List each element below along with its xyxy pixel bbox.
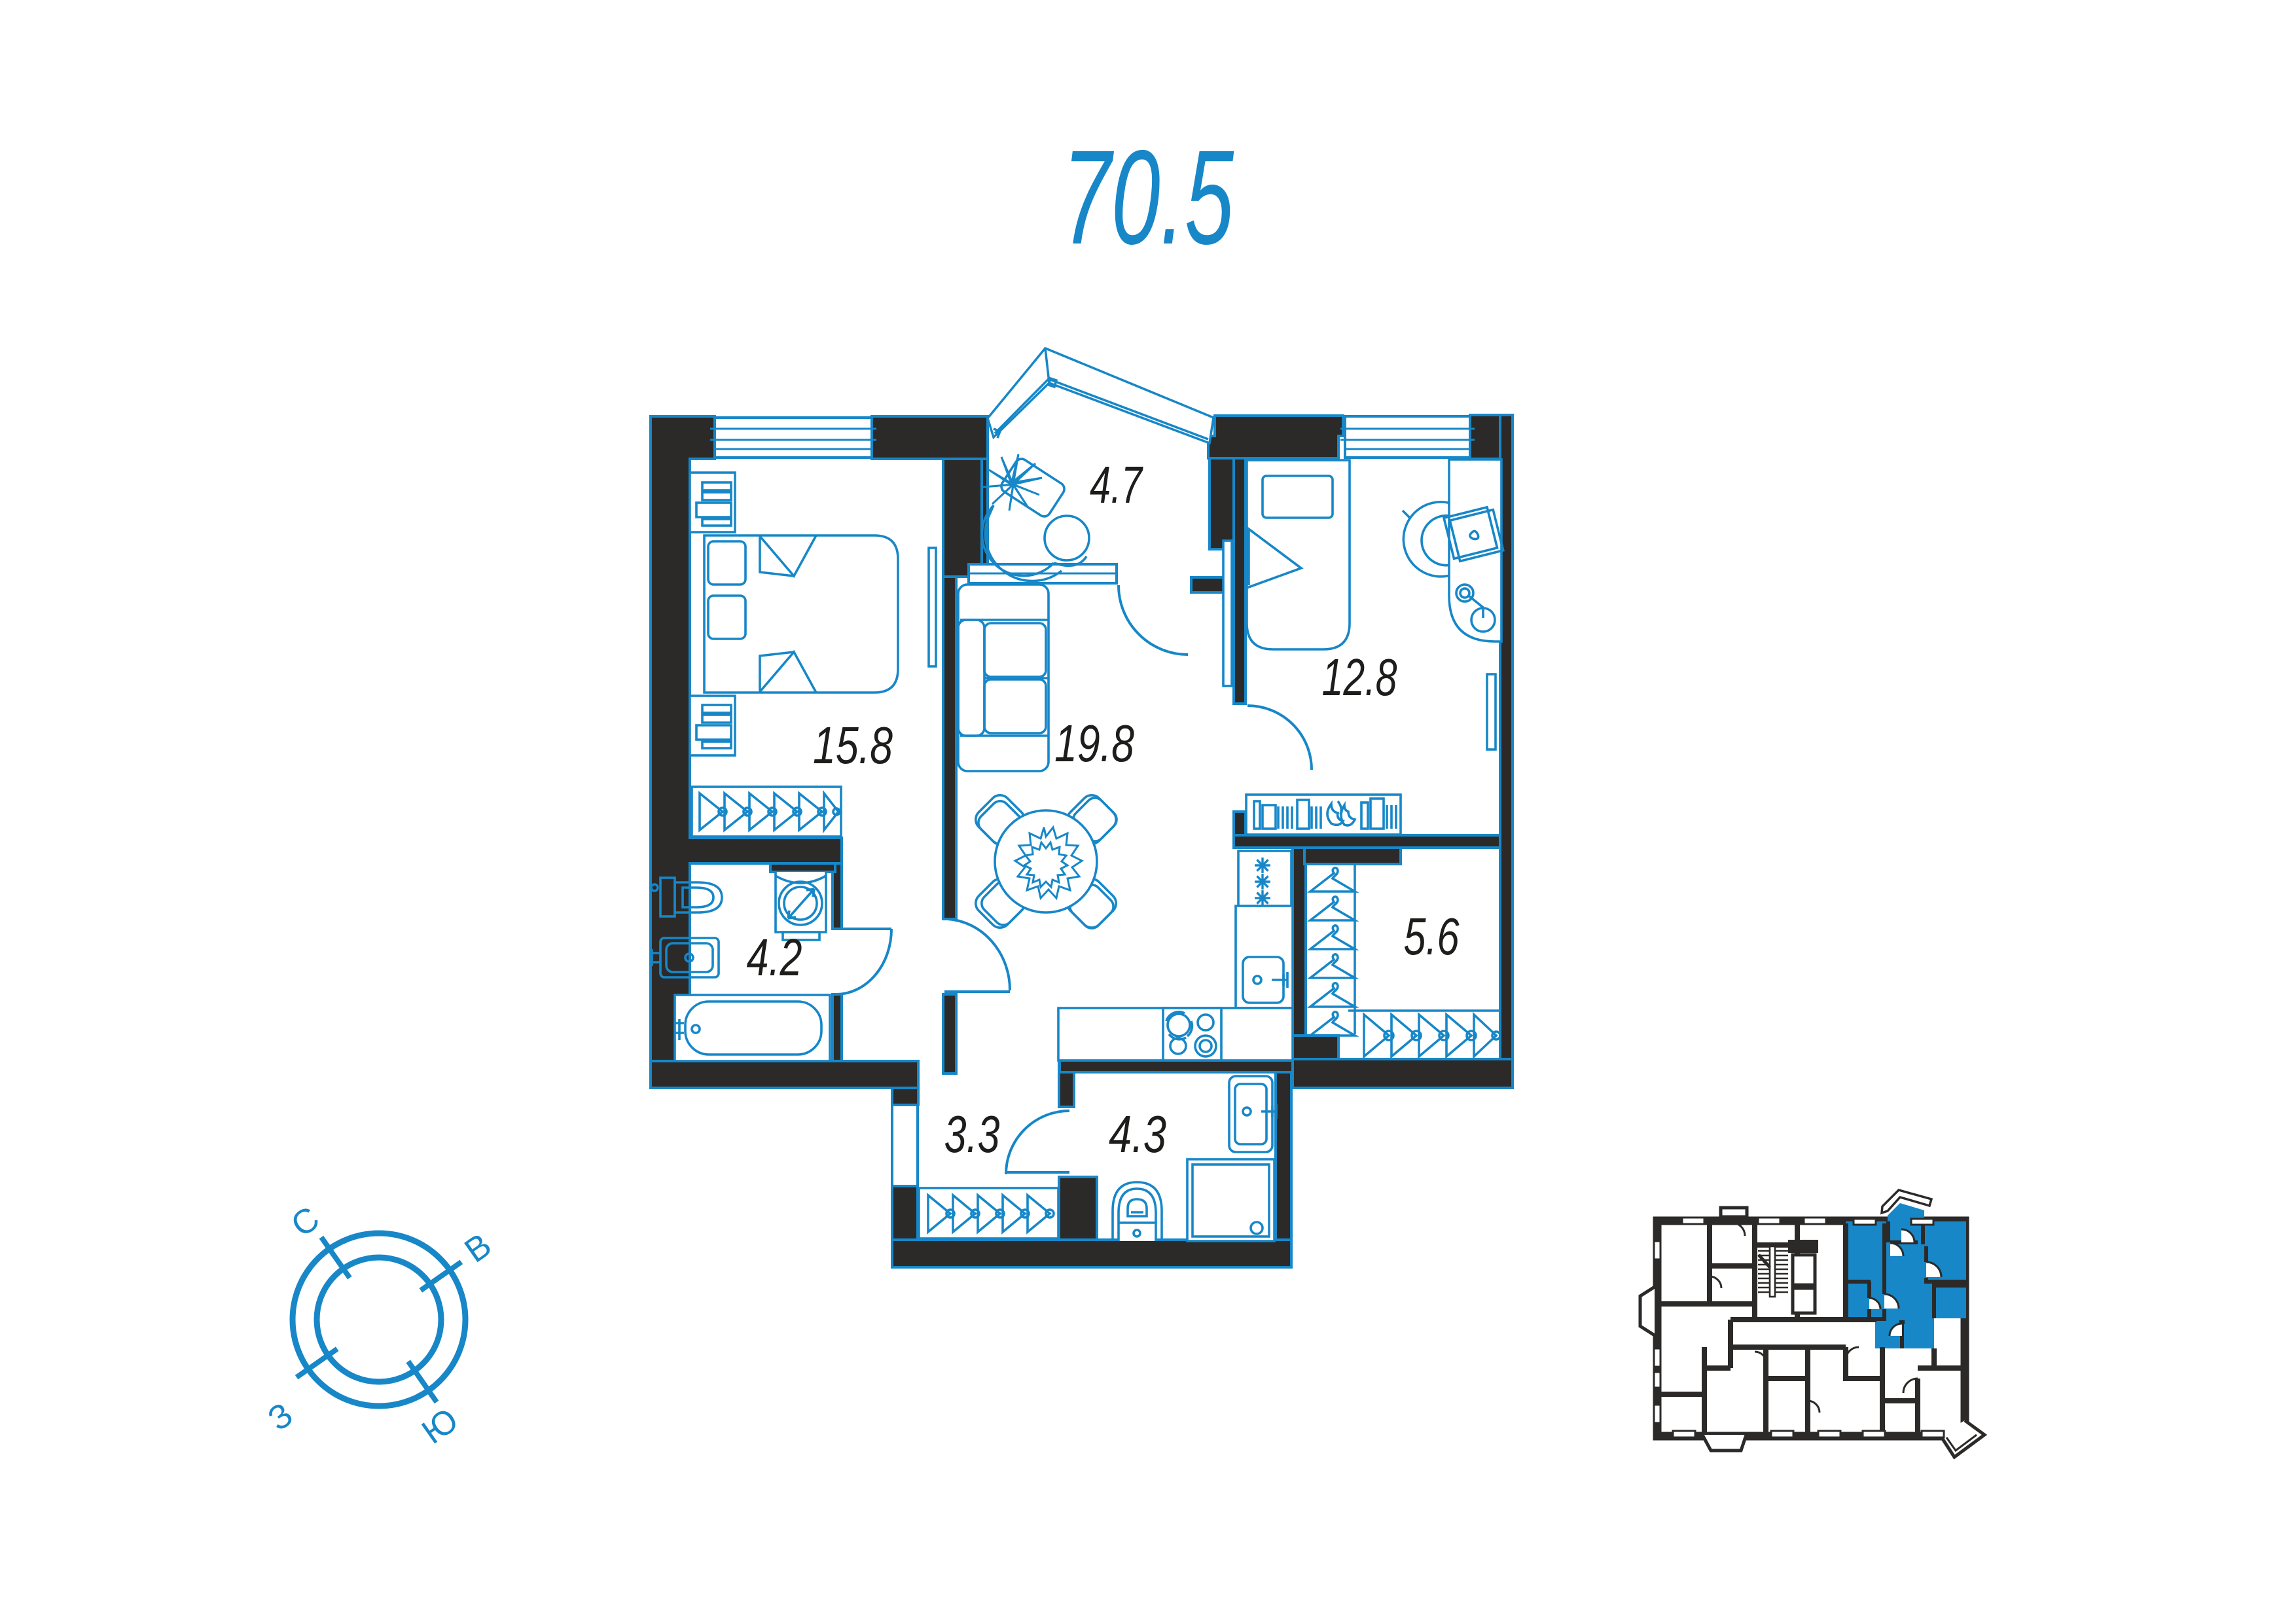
svg-text:3.3: 3.3 — [944, 1105, 1000, 1163]
svg-text:4.3: 4.3 — [1109, 1105, 1166, 1163]
svg-text:4.7: 4.7 — [1090, 456, 1143, 514]
svg-text:19.8: 19.8 — [1054, 714, 1134, 772]
svg-text:70.5: 70.5 — [1062, 122, 1234, 272]
svg-text:5.6: 5.6 — [1404, 907, 1460, 965]
svg-text:15.8: 15.8 — [813, 716, 893, 774]
svg-text:4.2: 4.2 — [747, 928, 802, 986]
svg-text:12.8: 12.8 — [1322, 648, 1397, 706]
